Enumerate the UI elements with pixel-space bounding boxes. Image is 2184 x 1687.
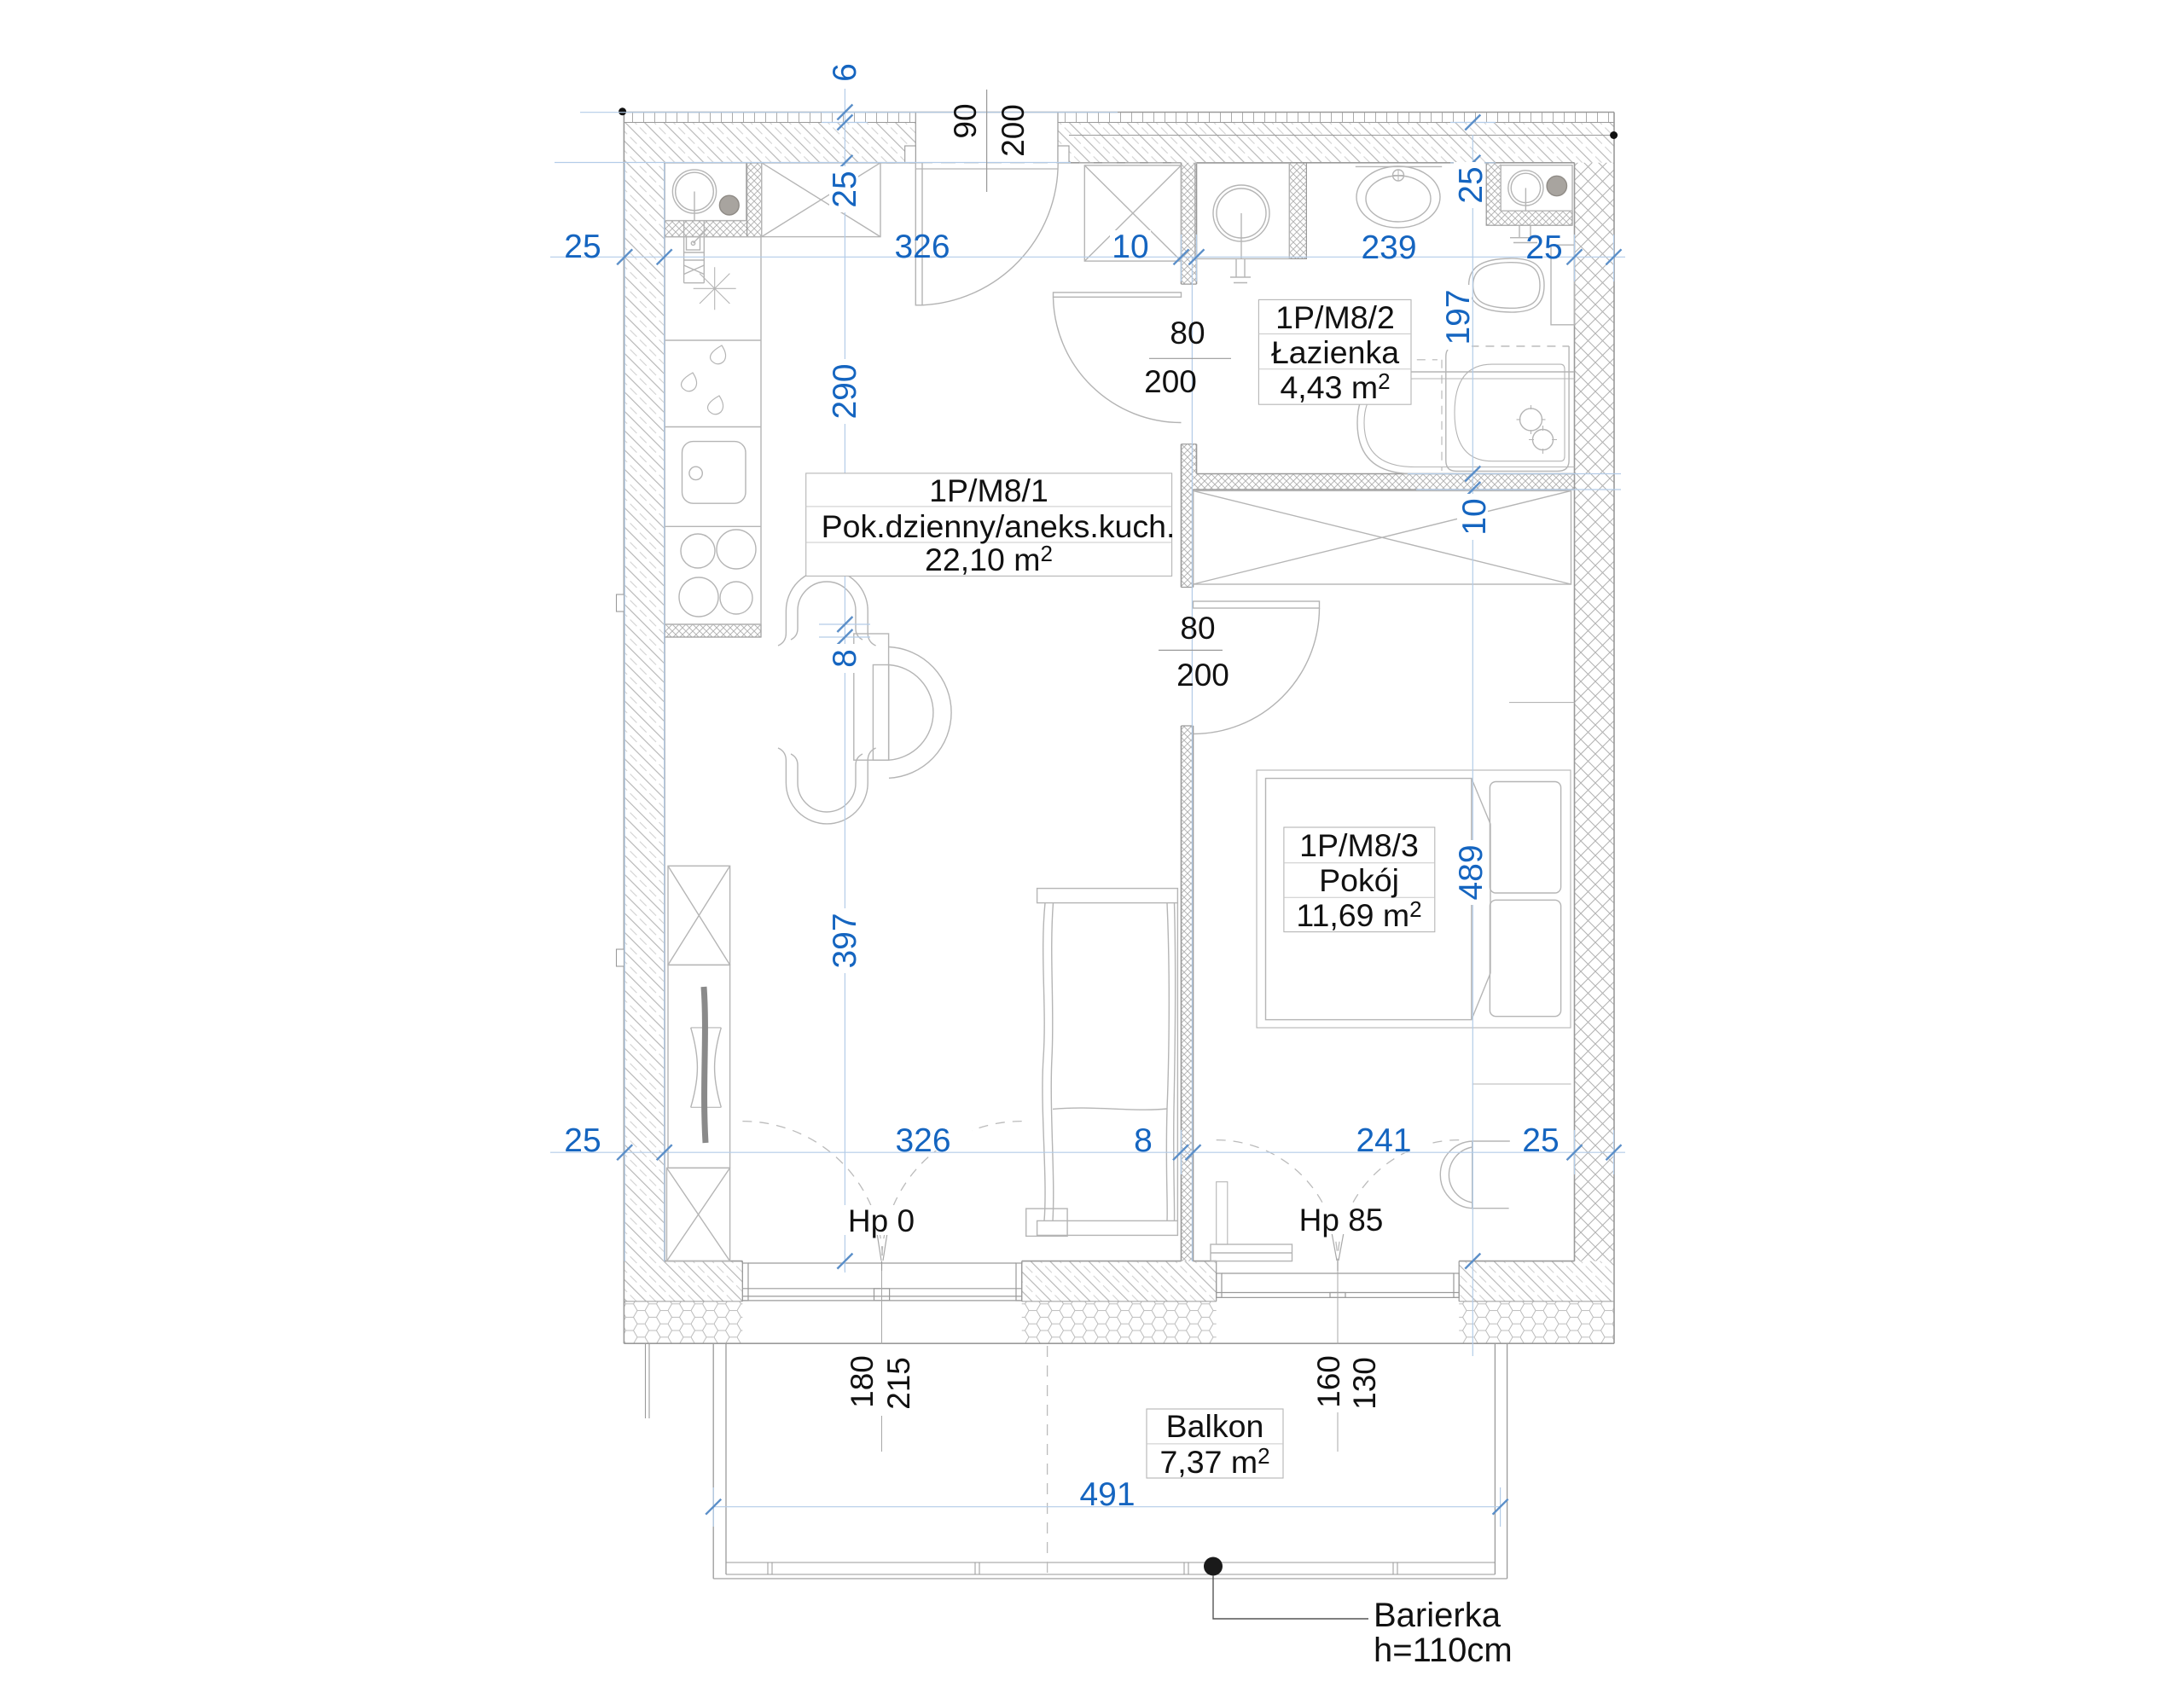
svg-text:25: 25 — [1525, 229, 1562, 266]
svg-text:11,69 m2: 11,69 m2 — [1296, 896, 1421, 933]
svg-text:80: 80 — [1170, 316, 1205, 351]
svg-text:Balkon: Balkon — [1166, 1408, 1264, 1444]
svg-text:239: 239 — [1361, 229, 1416, 266]
svg-text:326: 326 — [895, 1122, 950, 1159]
svg-text:25: 25 — [564, 1122, 601, 1159]
svg-text:80: 80 — [1180, 611, 1215, 646]
svg-text:8: 8 — [827, 649, 863, 668]
svg-text:200: 200 — [996, 104, 1031, 157]
svg-text:326: 326 — [894, 229, 950, 265]
svg-text:200: 200 — [1144, 364, 1197, 399]
svg-text:6: 6 — [827, 63, 863, 82]
svg-text:90: 90 — [948, 103, 983, 138]
svg-text:Łazienka: Łazienka — [1271, 334, 1399, 370]
svg-text:22,10 m2: 22,10 m2 — [925, 541, 1053, 577]
svg-text:197: 197 — [1440, 289, 1477, 345]
svg-text:241: 241 — [1356, 1122, 1411, 1159]
svg-text:290: 290 — [827, 363, 863, 419]
svg-text:1P/M8/3: 1P/M8/3 — [1299, 827, 1419, 863]
svg-text:Hp 85: Hp 85 — [1299, 1203, 1384, 1238]
svg-text:Hp 0: Hp 0 — [848, 1203, 915, 1238]
svg-text:489: 489 — [1453, 844, 1490, 900]
svg-text:Pokój: Pokój — [1319, 862, 1399, 898]
svg-text:h=110cm: h=110cm — [1374, 1632, 1513, 1669]
svg-text:25: 25 — [1522, 1122, 1559, 1159]
svg-text:1P/M8/2: 1P/M8/2 — [1275, 299, 1395, 335]
svg-text:25: 25 — [1453, 166, 1490, 203]
svg-text:130: 130 — [1347, 1357, 1382, 1410]
svg-text:Barierka: Barierka — [1374, 1597, 1501, 1634]
svg-text:25: 25 — [827, 171, 863, 207]
svg-text:1P/M8/1: 1P/M8/1 — [929, 472, 1048, 508]
svg-text:4,43 m2: 4,43 m2 — [1280, 368, 1390, 405]
svg-text:25: 25 — [564, 229, 601, 265]
svg-text:7,37 m2: 7,37 m2 — [1159, 1443, 1269, 1480]
svg-text:10: 10 — [1456, 498, 1493, 535]
svg-text:10: 10 — [1112, 229, 1148, 265]
svg-text:160: 160 — [1311, 1355, 1346, 1408]
svg-text:215: 215 — [881, 1357, 916, 1410]
svg-text:180: 180 — [845, 1355, 880, 1408]
svg-text:Pok.dzienny/aneks.kuch.: Pok.dzienny/aneks.kuch. — [822, 508, 1176, 544]
svg-text:491: 491 — [1079, 1476, 1135, 1513]
svg-text:8: 8 — [1134, 1122, 1153, 1159]
svg-text:200: 200 — [1176, 658, 1229, 693]
svg-text:397: 397 — [827, 913, 863, 968]
